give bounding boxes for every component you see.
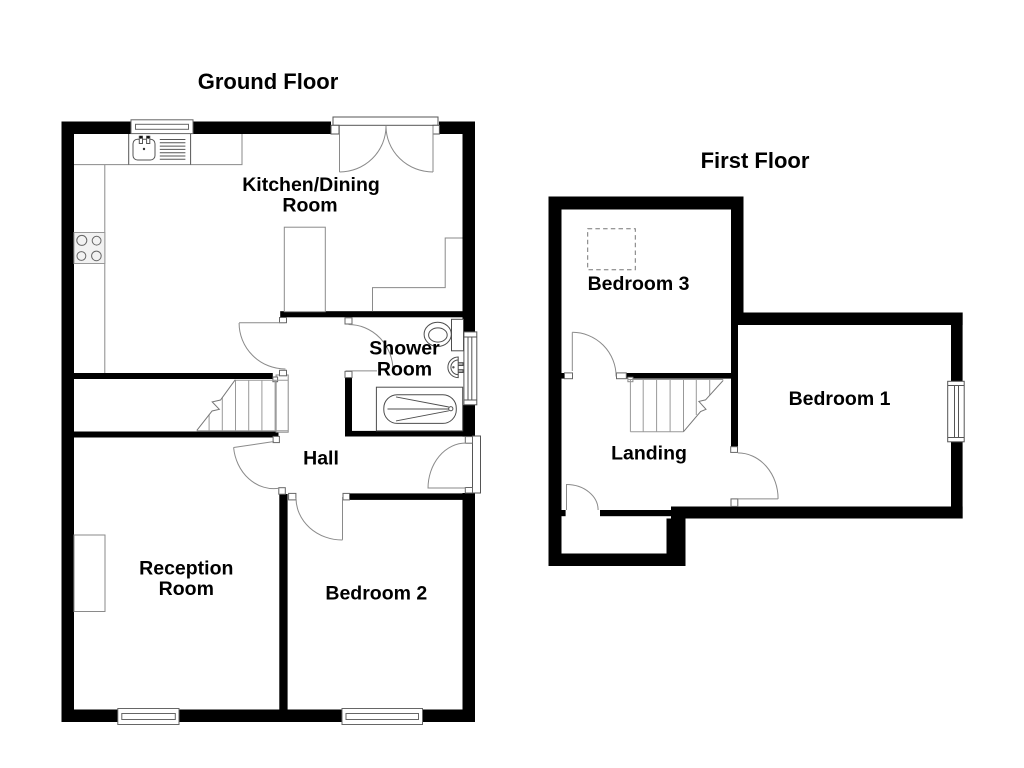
svg-text:Bedroom 1: Bedroom 1	[789, 388, 891, 410]
svg-text:First Floor: First Floor	[701, 148, 810, 173]
svg-text:Landing: Landing	[611, 443, 687, 465]
svg-text:Ground Floor: Ground Floor	[198, 69, 339, 94]
svg-text:Bedroom 2: Bedroom 2	[325, 583, 427, 605]
svg-text:Room: Room	[377, 359, 432, 381]
svg-text:Bedroom 3: Bedroom 3	[588, 273, 690, 295]
svg-text:Hall: Hall	[303, 448, 339, 470]
svg-text:Shower: Shower	[369, 338, 440, 360]
svg-text:Reception: Reception	[139, 558, 233, 580]
svg-text:Room: Room	[282, 195, 337, 217]
svg-text:Room: Room	[159, 578, 214, 600]
svg-text:Kitchen/Dining: Kitchen/Dining	[242, 174, 380, 196]
